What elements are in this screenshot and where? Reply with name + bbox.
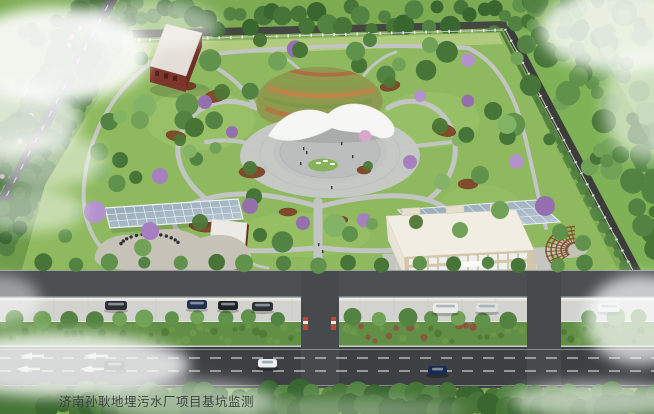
- site-rendering: [0, 0, 654, 414]
- caption-text: 济南孙耿地埋污水厂项目基坑监测: [59, 391, 254, 410]
- paved-plaza-west: [95, 229, 251, 274]
- rendering-canvas: 济南孙耿地埋污水厂项目基坑监测: [0, 0, 654, 414]
